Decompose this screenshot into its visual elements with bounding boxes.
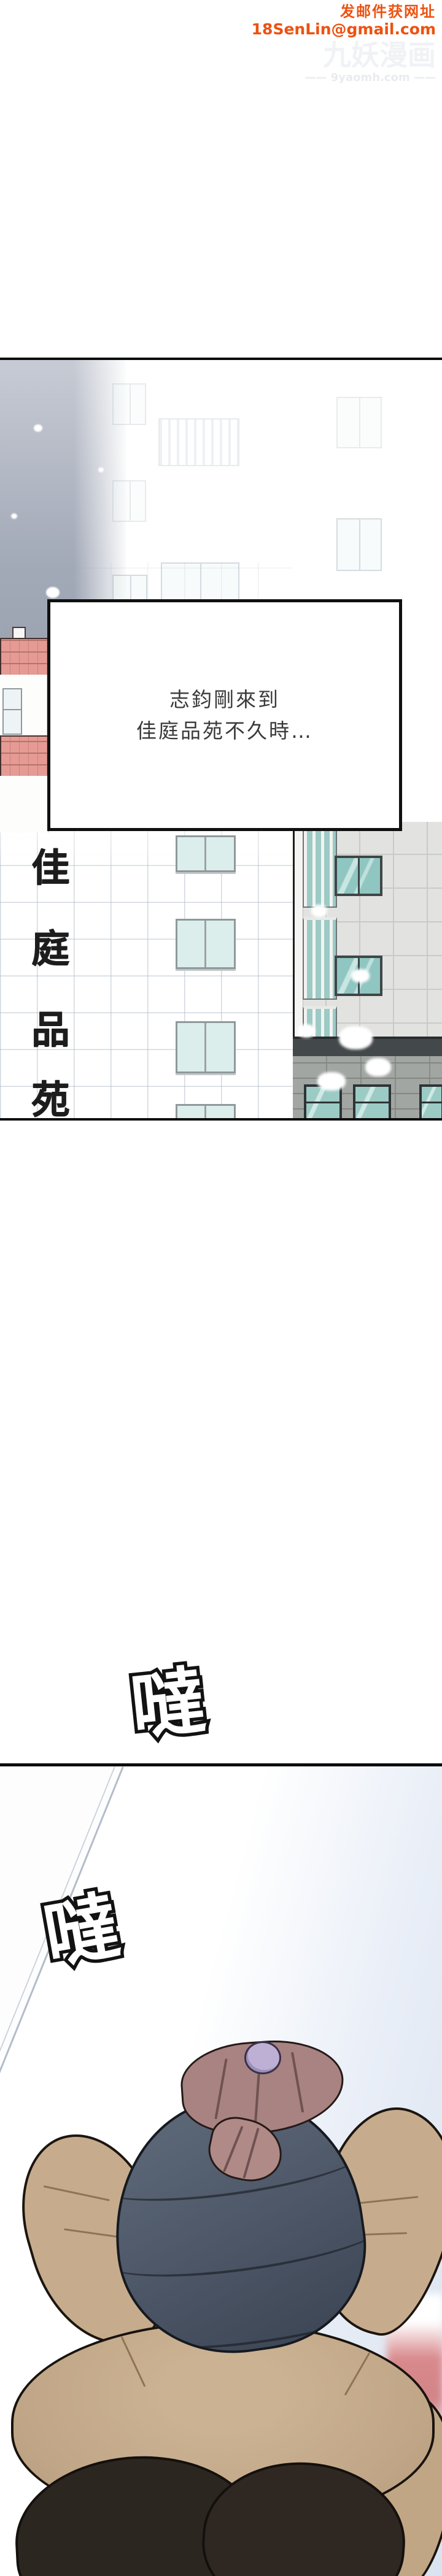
comic-page: 发邮件获网址 18SenLin@gmail.com 九妖漫画 —— 9yaomh… <box>0 0 442 2576</box>
sfx-footstep-2: 噠 噠 <box>25 1878 140 1998</box>
hair-scrunchie <box>244 2041 281 2074</box>
storefront-window <box>353 1084 391 1121</box>
snowflake <box>34 424 42 432</box>
narration-line: 志鈞剛來到 <box>169 684 280 715</box>
sfx-footstep-1: 噠 噠 <box>115 1654 223 1768</box>
snow-patch <box>317 1072 346 1091</box>
watermark-block: 发邮件获网址 18SenLin@gmail.com 九妖漫画 —— 9yaomh… <box>252 4 436 85</box>
house-window <box>2 688 22 735</box>
narration-line: 佳庭品苑不久時… <box>136 715 313 746</box>
narration-box: 志鈞剛來到 佳庭品苑不久時… <box>47 599 402 831</box>
snow-patch <box>298 1024 315 1038</box>
window <box>176 919 236 969</box>
window <box>336 518 382 571</box>
panel-building-scene: 佳 庭 品 苑 志鈞剛來到 佳庭品苑不久時… <box>0 358 442 1121</box>
balcony-railing <box>158 418 239 466</box>
watermark-notice: 发邮件获网址 <box>252 4 436 21</box>
teal-window <box>335 856 382 896</box>
storefront-window <box>419 1084 442 1121</box>
window <box>112 383 146 425</box>
window <box>112 480 146 522</box>
sign-char: 庭 <box>28 926 73 972</box>
balcony-door <box>303 828 337 908</box>
snow-patch <box>351 969 370 983</box>
watermark-email: 18SenLin@gmail.com <box>252 21 436 39</box>
snowflake <box>98 467 104 472</box>
snowflake <box>11 513 17 519</box>
sign-char: 苑 <box>28 1077 73 1121</box>
sfx-fill: 噠 <box>25 1878 138 1986</box>
snow-patch <box>365 1058 391 1076</box>
sign-char: 品 <box>28 1007 73 1052</box>
window <box>176 1021 236 1073</box>
window <box>176 1104 236 1121</box>
window <box>336 397 382 448</box>
house-wall-lower <box>0 776 49 832</box>
house-roof-upper <box>0 638 49 676</box>
house-chimney <box>12 627 26 639</box>
panel-person-scene: 噠 噠 <box>0 1763 442 2576</box>
house-roof-lower <box>0 735 50 777</box>
watermark-site-name: 九妖漫画 <box>252 39 436 72</box>
rear-building <box>293 822 442 1121</box>
sign-char: 佳 <box>28 845 73 891</box>
sfx-fill: 噠 <box>115 1654 222 1756</box>
window <box>176 835 236 872</box>
snow-patch <box>339 1026 373 1049</box>
watermark-site-url: —— 9yaomh.com —— <box>252 72 436 85</box>
balcony-door <box>303 917 337 1000</box>
snow-patch <box>311 905 327 917</box>
